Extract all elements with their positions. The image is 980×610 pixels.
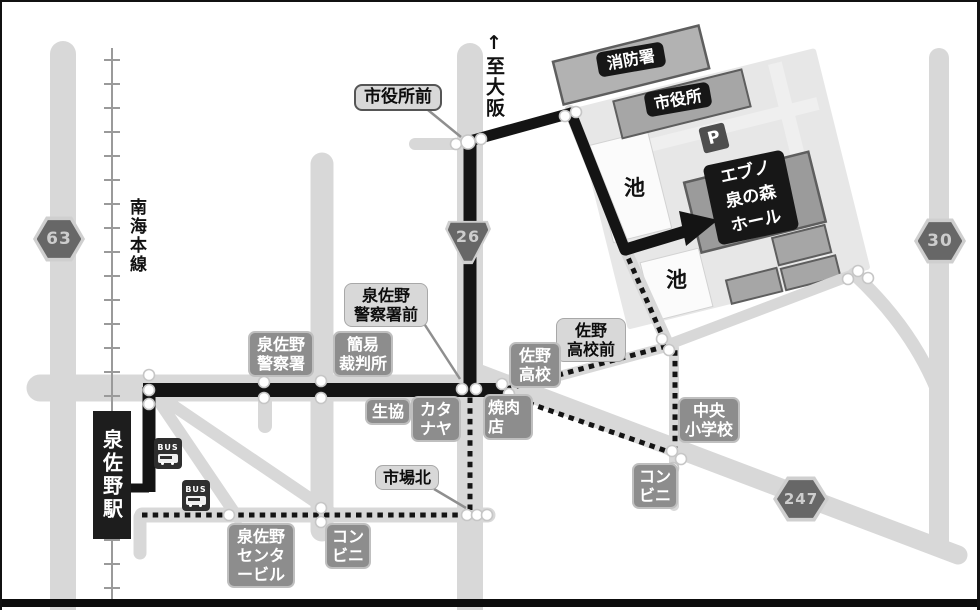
route-30-shape: 30 bbox=[914, 218, 966, 264]
route-30-badge: 30 bbox=[914, 218, 966, 264]
route-63-badge: 63 bbox=[33, 216, 85, 262]
sano-hs-label: 佐野 高校 bbox=[509, 342, 561, 388]
access-map: ↑至大阪 南海本線 63 26 30 247 消防署 市役所 P エブノ 泉の森… bbox=[0, 0, 980, 610]
station-name: 泉佐野駅 bbox=[98, 429, 127, 521]
route-247-badge: 247 bbox=[773, 476, 829, 522]
bus-glyph bbox=[158, 454, 178, 463]
route-247-shape: 247 bbox=[773, 476, 829, 522]
pond-label-2: 池 bbox=[666, 264, 687, 294]
convenience-store-east-label: コン ビニ bbox=[632, 463, 678, 509]
bus-glyph bbox=[186, 496, 206, 505]
convenience-store-west-label: コン ビニ bbox=[325, 523, 371, 569]
center-building-label: 泉佐野 センタ ービル bbox=[227, 523, 295, 588]
route-26-badge: 26 bbox=[445, 220, 491, 265]
nankai-line-label: 南海本線 bbox=[124, 198, 149, 293]
route-63-shape: 63 bbox=[33, 216, 85, 262]
bus-stop-icon-2: BUS bbox=[182, 480, 210, 511]
katanaya-label: カタ ナヤ bbox=[411, 396, 461, 442]
sano-hs-front-label: 佐野 高校前 bbox=[556, 318, 626, 362]
police-front-label: 泉佐野 警察署前 bbox=[344, 283, 428, 327]
route-26-shape: 26 bbox=[445, 220, 491, 265]
izumisano-station: 泉佐野駅 bbox=[93, 411, 131, 539]
hall-label: エブノ 泉の森 ホール bbox=[702, 149, 799, 245]
map-bottom-border bbox=[2, 599, 980, 607]
road-gate-curve bbox=[854, 274, 936, 388]
city-hall-front-label: 市役所前 bbox=[354, 84, 442, 111]
bus-stop-icon-1: BUS bbox=[154, 438, 182, 469]
to-osaka-direction: ↑至大阪 bbox=[481, 32, 508, 182]
chuo-es-label: 中央 小学校 bbox=[678, 397, 740, 443]
pond-label-1: 池 bbox=[624, 172, 645, 202]
ichiba-kita-label: 市場北 bbox=[375, 465, 439, 490]
up-arrow-icon: ↑ bbox=[483, 32, 505, 56]
court-label: 簡易 裁判所 bbox=[333, 331, 393, 377]
to-osaka-label: 至大阪 bbox=[483, 56, 505, 119]
yakiniku-label: 焼肉 店 bbox=[483, 394, 533, 440]
police-station-label: 泉佐野 警察署 bbox=[248, 331, 314, 377]
coop-label: 生協 bbox=[365, 398, 411, 425]
